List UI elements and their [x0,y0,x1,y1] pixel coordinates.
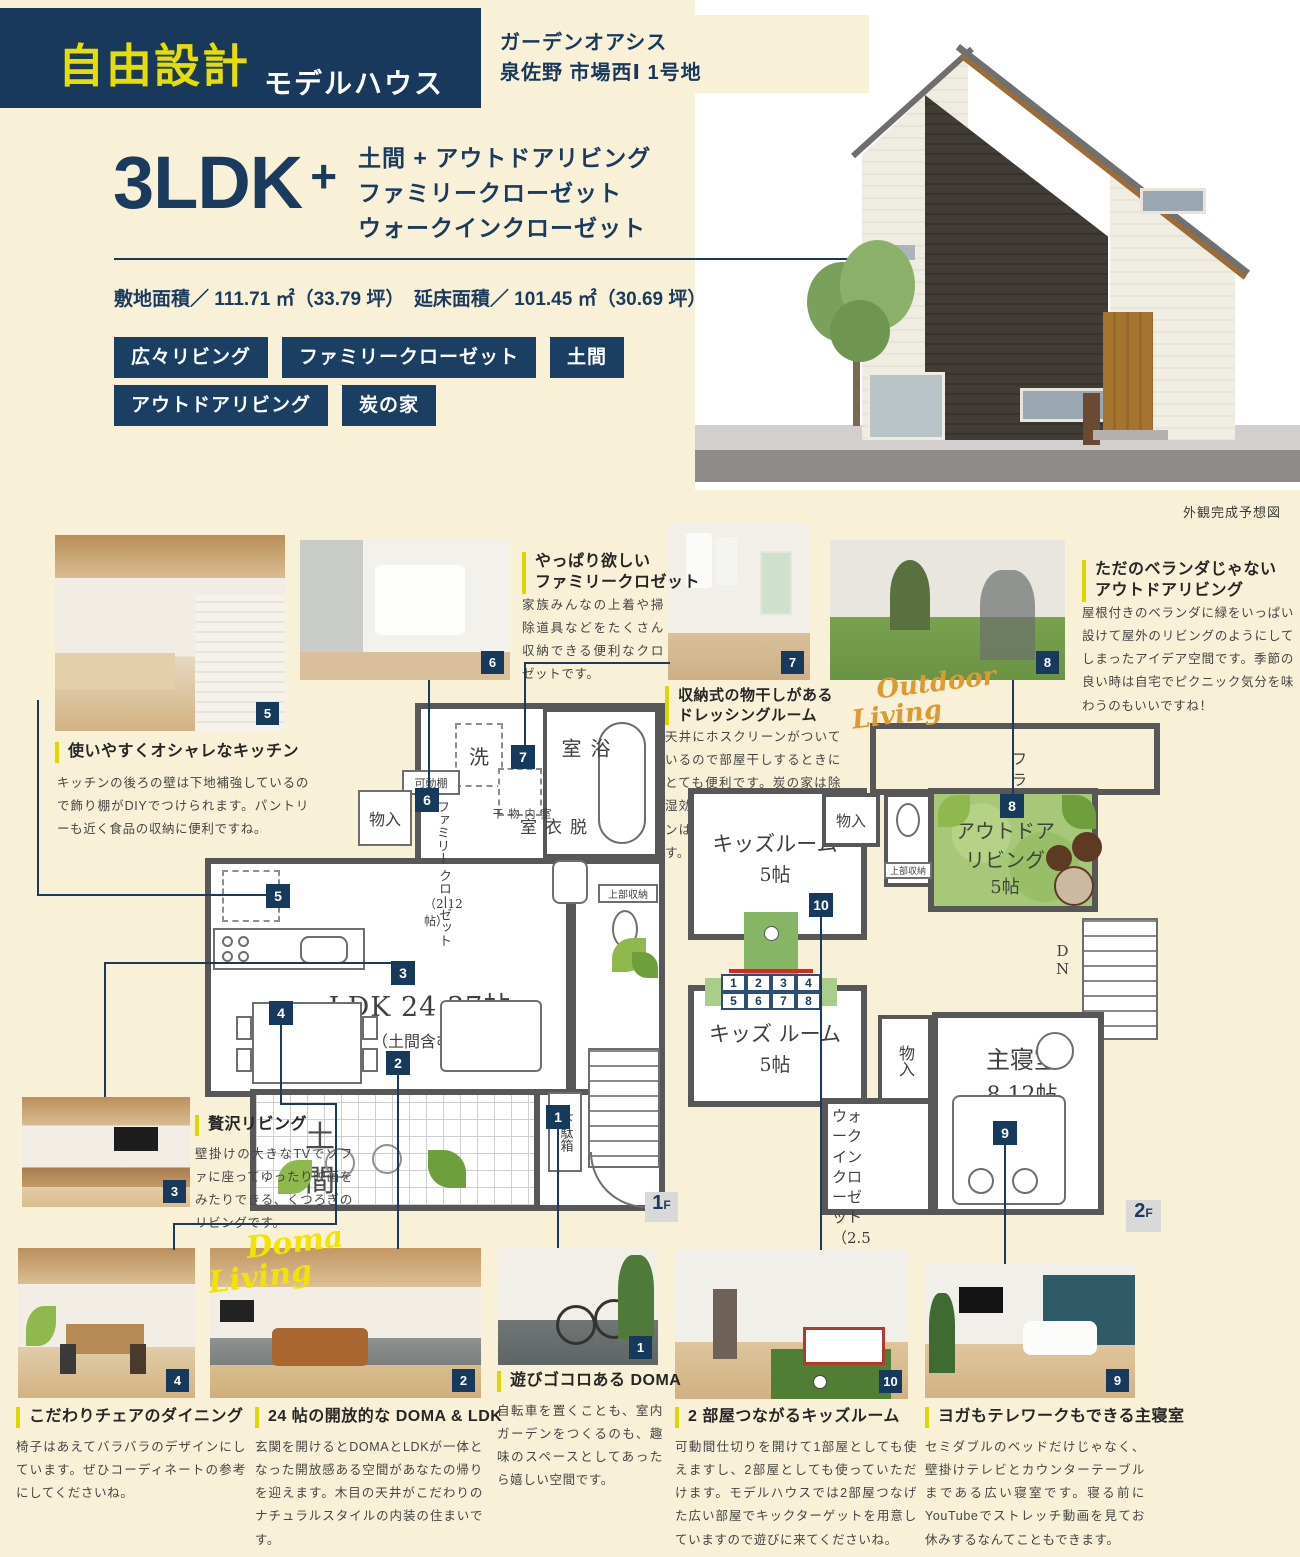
plan-marker-3: 3 [391,961,415,985]
photo-dressing-room: 7 [668,523,810,680]
photo-decor-wheel [556,1305,596,1345]
page-title: 自由設計 [58,30,250,96]
photo-number-badge: 1 [629,1336,652,1359]
house-window-upper [1140,188,1206,214]
pillow [1012,1168,1038,1194]
kick-target-red-bar [729,969,813,973]
dining-chair [362,1016,378,1040]
stove-burner [238,936,249,947]
caption-doma-ldk: 24 帖の開放的な DOMA & LDK [255,1407,502,1428]
label-outdoor-living: アウトドア リビング 5帖 [950,815,1060,899]
tag-family-closet: ファミリークローゼット [282,337,536,378]
photo-doma-bike: 1 [498,1247,658,1365]
kick-cell: 3 [771,974,796,992]
area-line: 敷地面積／ 111.71 ㎡（33.79 坪） 延床面積／ 101.45 ㎡（3… [114,284,706,311]
leader-line [37,894,270,896]
photo-dining: 4 [18,1248,195,1398]
dining-chair [362,1048,378,1072]
dining-chair [236,1016,252,1040]
plan-marker-8: 8 [1000,794,1024,818]
label-dn: D N [1056,942,1069,978]
outdoor-living-script: Outdoor Living [875,663,1001,732]
shoe-box: 下駄箱 [548,1092,582,1172]
plan-marker-5: 5 [266,884,290,908]
photo-decor-plant [929,1293,955,1373]
toilet-2f [896,803,920,837]
caption-accent-bar [1082,560,1086,602]
caption-kids-room-body: 可動間仕切りを開けて1部屋としても使えますし、2部屋としても使っていただけます。… [675,1436,917,1552]
dining-chair [236,1048,252,1072]
stove-burner [222,936,233,947]
caption-accent-bar [195,1115,199,1136]
leader-line [104,962,106,1098]
caption-kitchen-body: キッチンの後ろの壁は下地補強しているので飾り棚がDIYでつけられます。パントリー… [57,772,309,841]
plan-marker-6: 6 [415,788,439,812]
photo-decor-chair [130,1344,146,1374]
leader-line [1012,680,1014,800]
stove-burner [238,951,249,962]
plan-marker-10: 10 [809,893,833,917]
tag-row-2: アウトドアリビング 炭の家 [114,385,436,426]
chair-icon [1036,1032,1074,1070]
caption-doma-body: 自転車を置くことも、室内ガーデンをつくるのも、趣味のスペースとしてあったら嬉しい… [497,1400,663,1493]
kick-cell: 8 [796,992,821,1010]
upper-storage-2f: 上部収納 [884,862,932,879]
house-render [695,0,1300,490]
kick-cell: 7 [771,992,796,1010]
photo-kids-room: 10 [675,1249,908,1399]
house-road [695,450,1300,482]
photo-decor-chair [60,1344,76,1374]
leader-line [37,700,39,896]
kick-cell: 6 [746,992,771,1010]
location-line2: 泉佐野 市場西Ⅰ 1号地 [500,56,702,85]
washer-box: 洗 [455,723,503,787]
render-caption: 外観完成予想図 [1183,502,1281,521]
feature-line-3: ウォークインクローゼット [358,209,646,243]
closet-2f-top: 物入 [822,793,880,847]
photo-number-badge: 7 [781,651,804,674]
photo-decor-sofa [272,1328,368,1366]
label-dressing: 脱衣室 [514,818,589,835]
house-steps [1093,430,1168,440]
feature-line-2: ファミリークローゼット [358,174,622,208]
bed [952,1095,1066,1205]
leader-line [1004,1145,1006,1264]
photo-number-badge: 4 [166,1369,189,1392]
doma-living-script: Doma Living [245,1222,349,1293]
caption-accent-bar [665,686,669,725]
tag-doma: 土間 [550,337,624,378]
photo-decor [375,565,465,635]
feature-line-1: 土間 + アウトドアリビング [358,139,651,173]
plan-type: 3LDK [113,141,302,224]
caption-dressing-room: 収納式の物干しがあるドレッシングルーム [665,686,833,725]
photo-decor [890,560,930,630]
label-bath: 浴室 [556,738,614,758]
tag-row-1: 広々リビング ファミリークローゼット 土間 [114,337,624,378]
caption-kids-room: 2 部屋つながるキッズルーム [675,1407,900,1428]
caption-living: 贅沢リビング [195,1115,307,1136]
house-door [1103,312,1153,432]
caption-accent-bar [55,742,59,763]
leader-line [524,662,526,748]
photo-number-badge: 3 [163,1180,186,1203]
photo-decor-tv [959,1287,1003,1313]
caption-family-closet-body: 家族みんなの上着や掃除道具などをたくさん収納できる便利なクロゼットです。 [522,594,664,687]
kitchen-sink [300,936,348,964]
label-family-closet-size: （2.12帖） [424,895,463,929]
page-subtitle: モデルハウス [264,62,444,102]
leader-line [820,916,822,1250]
leader-line [173,1223,175,1250]
caption-doma: 遊びゴコロある DOMA [497,1371,681,1392]
kick-cell: 2 [746,974,771,992]
photo-outdoor-living: 8 [830,540,1065,680]
upper-storage-1f: 上部収納 [598,884,658,903]
caption-accent-bar [497,1371,501,1392]
photo-number-badge: 5 [256,702,279,725]
soccer-ball [764,926,779,941]
caption-master-bedroom-body: セミダブルのベッドだけじゃなく、壁掛けテレビとカウンターテーブルまである広い寝室… [925,1436,1145,1552]
caption-kitchen: 使いやすくオシャレなキッチン [55,742,299,763]
leader-line [428,680,430,792]
tag-outdoor-living: アウトドアリビング [114,385,328,426]
photo-decor-kick-target [803,1327,885,1365]
photo-living: 3 [22,1097,190,1207]
caption-family-closet: やっぱり欲しいファミリークロゼット [522,552,700,594]
washbasin [552,860,588,904]
kick-cell: 4 [796,974,821,992]
sofa [440,1000,542,1072]
plan-marker-1: 1 [546,1105,570,1129]
photo-decor-ball [813,1375,827,1389]
photo-number-badge: 10 [879,1370,902,1393]
photo-decor [716,537,738,585]
leader-line [397,1074,399,1249]
tag-charcoal-house: 炭の家 [342,385,436,426]
photo-decor-plant [618,1255,654,1339]
plan-marker-2: 2 [386,1051,410,1075]
label-wic: ウォークイン クローゼット （2.5帖） [832,1106,871,1268]
outdoor-table [1054,866,1094,906]
photo-number-badge: 8 [1036,651,1059,674]
photo-number-badge: 9 [1106,1369,1129,1392]
caption-dining-body: 椅子はあえてバラバラのデザインにしています。ぜひコーディネートの参考にしてくださ… [16,1436,246,1505]
photo-decor-tv [220,1300,254,1322]
photo-master-bedroom: 9 [925,1263,1135,1398]
caption-doma-ldk-body: 玄関を開けるとDOMAとLDKが一体となった開放感ある空間があなたの帰りを迎えま… [255,1436,483,1552]
plan-type-plus: + [310,150,336,202]
leader-line [280,1103,337,1105]
label-kids-2: キッズ ルーム 5帖 [700,1018,850,1077]
photo-family-closet: 6 [300,540,510,680]
photo-number-badge: 2 [452,1369,475,1392]
caption-dining: こだわりチェアのダイニング [16,1407,244,1428]
caption-accent-bar [16,1407,20,1428]
caption-accent-bar [522,552,526,594]
house-window-large [867,372,945,440]
caption-accent-bar [925,1407,929,1428]
stairs-1f [588,1048,660,1168]
closet-2f-mid: 物入 [878,1015,932,1107]
caption-accent-bar [675,1407,679,1428]
caption-outdoor-living: ただのベランダじゃないアウトドアリビング [1082,560,1277,602]
floor-tag-2f: 2F [1126,1200,1161,1232]
caption-accent-bar [255,1407,259,1428]
photo-decor-door [713,1289,737,1359]
photo-decor [55,653,175,689]
house-tree-foliage [830,300,890,362]
plan-type-heading: 3LDK+ [113,140,336,225]
plant-icon [26,1306,56,1346]
caption-outdoor-living-body: 屋根付きのベランダに緑をいっぱい設けて屋外のリビングのようにしてしまったアイデア… [1082,602,1294,718]
leader-line [104,962,394,964]
plan-marker-9: 9 [993,1121,1017,1145]
kick-target-grid: 1 2 3 4 5 6 7 8 [721,974,821,1008]
kick-cell: 1 [721,974,746,992]
caption-master-bedroom: ヨガもテレワークもできる主寝室 [925,1407,1185,1428]
photo-decor-tv [114,1127,158,1151]
plan-marker-4: 4 [269,1001,293,1025]
closet-1f-box: 物入 [358,790,412,846]
flyer-page: 自由設計 モデルハウス ガーデンオアシス 泉佐野 市場西Ⅰ 1号地 3LDK+ … [0,0,1300,1557]
pillow [968,1168,994,1194]
floor-tag-1f: 1F [645,1192,678,1222]
stove-burner [222,951,233,962]
location-line1: ガーデンオアシス [500,26,667,55]
plan-marker-7: 7 [511,745,535,769]
photo-decor [300,652,510,680]
photo-decor [980,570,1035,660]
photo-decor-bed [1023,1321,1097,1355]
photo-decor [760,551,792,615]
photo-number-badge: 6 [481,651,504,674]
tag-living: 広々リビング [114,337,268,378]
leader-line [335,1103,337,1225]
photo-kitchen: 5 [55,535,285,731]
outdoor-table [1072,832,1102,862]
leader-line [557,1128,559,1248]
leader-line [524,662,670,664]
leader-line [280,1024,282,1105]
kick-cell: 5 [721,992,746,1010]
